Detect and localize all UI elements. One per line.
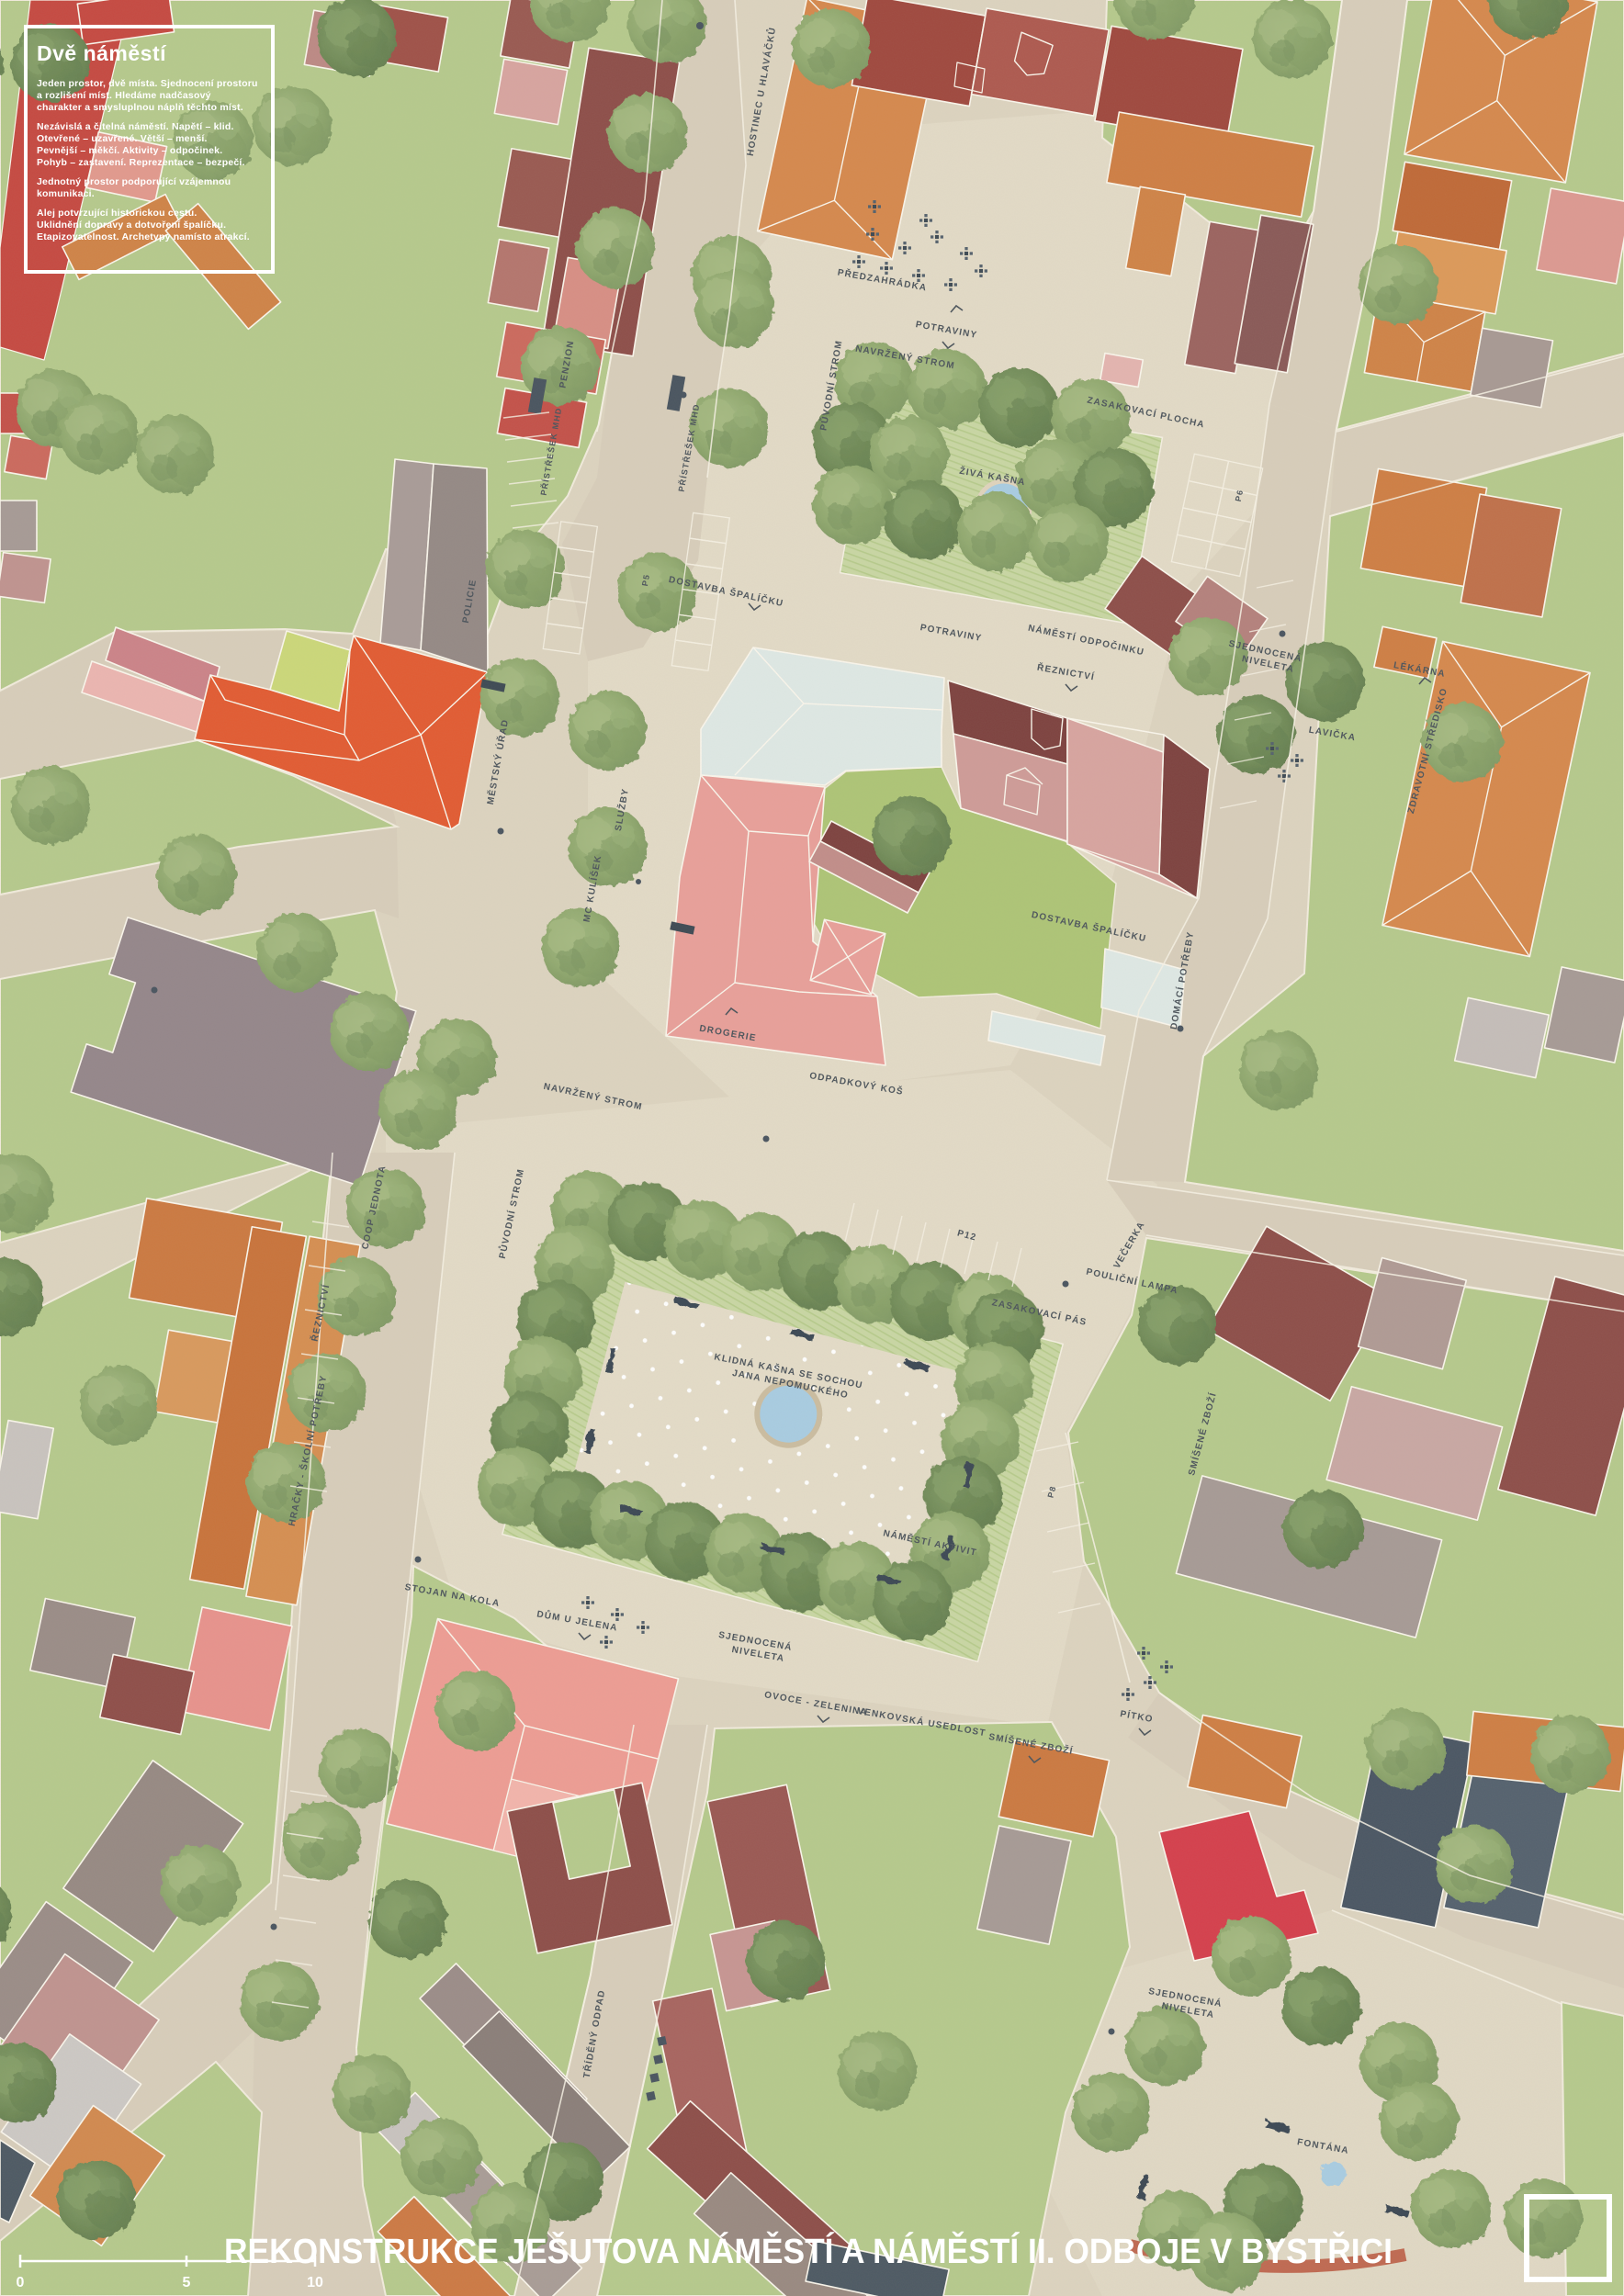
- svg-text:Otevřené – uzavřené. Větší – m: Otevřené – uzavřené. Větší – menší.: [37, 133, 208, 144]
- svg-text:charakter a smysluplnou náplň: charakter a smysluplnou náplň těchto mís…: [37, 102, 243, 113]
- svg-text:komunikaci.: komunikaci.: [37, 188, 95, 199]
- svg-text:Uklidnění dopravy a dotvoření: Uklidnění dopravy a dotvoření špalíčku.: [37, 219, 226, 231]
- svg-text:Etapizovatelnost. Archetypy na: Etapizovatelnost. Archetypy namísto atra…: [37, 231, 250, 242]
- svg-text:Dvě náměstí: Dvě náměstí: [37, 41, 167, 65]
- svg-text:Pevnější – měkčí. Aktivity – o: Pevnější – měkčí. Aktivity – odpočinek.: [37, 145, 222, 156]
- svg-text:10: 10: [307, 2275, 323, 2290]
- svg-text:REKONSTRUKCE JEŠUTOVA NÁMĚSTÍ: REKONSTRUKCE JEŠUTOVA NÁMĚSTÍ A NÁMĚSTÍ …: [224, 2230, 1393, 2271]
- svg-text:Jednotný prostor podporující v: Jednotný prostor podporující vzájemnou: [37, 176, 231, 187]
- svg-text:5: 5: [183, 2275, 191, 2290]
- svg-text:0: 0: [17, 2275, 25, 2290]
- svg-text:Alej potvrzující historickou c: Alej potvrzující historickou cestu.: [37, 208, 197, 219]
- svg-text:Jeden prostor, dvě místa. Sjed: Jeden prostor, dvě místa. Sjednocení pro…: [37, 78, 258, 89]
- svg-text:a rozlišení míst. Hledáme nadč: a rozlišení míst. Hledáme nadčasový: [37, 90, 211, 101]
- svg-text:Pohyb – zastavení. Reprezentac: Pohyb – zastavení. Reprezentace – bezpeč…: [37, 157, 245, 168]
- svg-text:Nezávislá a čitelná náměstí. N: Nezávislá a čitelná náměstí. Napětí – kl…: [37, 121, 234, 132]
